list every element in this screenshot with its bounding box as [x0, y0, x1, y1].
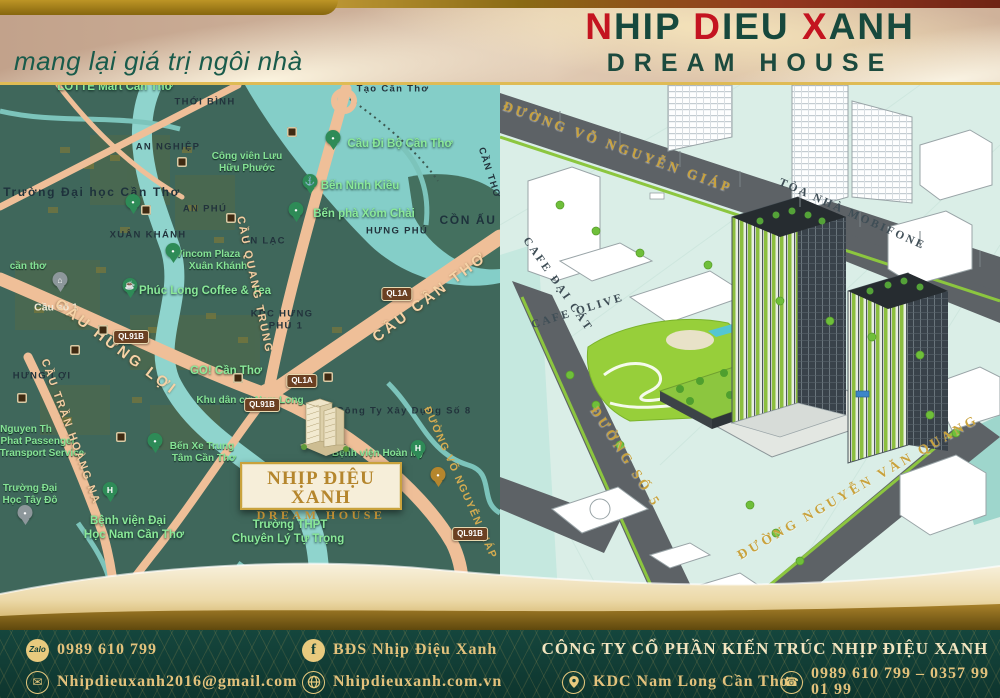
map-label: Chuyên Lý Tự Trọng [232, 533, 344, 547]
transit-station-icon [287, 127, 297, 137]
map-label: Công Ty Xây Dựng Số 8 [337, 405, 472, 416]
map-label: Xuân Khánh [189, 261, 247, 273]
company-name: CÔNG TY CỔ PHẦN KIẾN TRÚC NHỊP ĐIỆU XANH [540, 640, 990, 657]
map-label: PHÚ 1 [269, 320, 303, 331]
brand-title: NHIP DIEU XANH [500, 7, 1000, 48]
footer-email-row: ✉ Nhipdieuxanh2016@gmail.com [26, 670, 297, 694]
map-poi-pin-icon: • [326, 130, 341, 145]
map-poi-pin-icon: ⚓ [303, 174, 318, 189]
transit-station-icon [98, 325, 108, 335]
map-label: Tâm Cần Thơ [172, 453, 236, 465]
road-badge: QL1A [381, 287, 412, 301]
footer-website-row: Nhipdieuxanh.com.vn [302, 670, 502, 694]
footer-facebook-row: f BĐS Nhịp Điệu Xanh [302, 638, 497, 662]
transit-station-icon [323, 372, 333, 382]
brand-title-segment: N [585, 6, 614, 47]
map-label: CỒN ẤU [440, 213, 497, 227]
email-icon: ✉ [26, 671, 49, 694]
map-label: Bến phà Xóm Chài [313, 208, 415, 222]
brand-subtitle: DREAM HOUSE [500, 51, 1000, 76]
map-label: Bệnh viện Đại [90, 515, 166, 529]
email-address: Nhipdieuxanh2016@gmail.com [57, 674, 297, 690]
map-poi-pin-icon: • [148, 433, 163, 448]
road-badge: QL1A [286, 374, 317, 388]
map-poi-pin-icon: • [289, 202, 304, 217]
road-badge: QL91B [452, 527, 488, 541]
address-text: KDC Nam Long Cần Thơ [593, 674, 790, 690]
project-name: NHỊP ĐIỆU XANH [242, 469, 400, 507]
map-label: Bến Xe Trung [170, 441, 234, 453]
map-label: LOTTE Mart Cần Thơ [57, 85, 173, 95]
tagline: mang lại giá trị ngôi nhà [14, 48, 303, 74]
road-badge: QL91B [113, 330, 149, 344]
map-label: PHÚ THỨ [400, 579, 452, 590]
header-gold-cap [0, 0, 338, 15]
poster: mang lại giá trị ngôi nhà NHIP DIEU XANH… [0, 0, 1000, 698]
map-label: Trường Đại học Cần Thơ [3, 185, 181, 199]
map-label: cần thơ [10, 261, 47, 273]
brand-title-segment: IEU [722, 6, 802, 47]
transit-station-icon [116, 432, 126, 442]
map-label: Bến Ninh Kiều [321, 180, 400, 194]
map-label: XUÂN KHÁNH [110, 229, 187, 240]
map-poi-pin-icon: • [18, 505, 33, 520]
map-label: Tạo Cần Thơ [357, 85, 430, 95]
map-label: Trường Đại [3, 483, 57, 495]
transit-station-icon [233, 373, 243, 383]
map-label: HƯNG PHÚ [366, 225, 428, 236]
brand-title-segment: ANH [829, 6, 915, 47]
transit-station-icon [226, 213, 236, 223]
facebook-icon: f [302, 639, 325, 662]
footer-address-row: KDC Nam Long Cần Thơ [562, 670, 790, 694]
zalo-icon: Zalo [26, 639, 49, 662]
website-url: Nhipdieuxanh.com.vn [333, 674, 502, 690]
map-poi-pin-icon: H [103, 482, 118, 497]
map-label: Hữu Phước [219, 163, 275, 175]
map-poi-pin-icon: • [431, 467, 446, 482]
transit-station-icon [141, 205, 151, 215]
map-label: AN PHÚ [183, 203, 227, 214]
transit-station-icon [177, 157, 187, 167]
map-label: AN NGHIỆP [136, 141, 200, 152]
map-label: Cầu Đi Bộ Cần Thơ [347, 138, 452, 152]
phone-icon: ☎ [780, 671, 803, 694]
zalo-number: 0989 610 799 [57, 642, 157, 658]
globe-icon [302, 671, 325, 694]
brand-title-segment: X [802, 6, 829, 47]
map-poi-pin-icon: • [166, 243, 181, 258]
facebook-page: BĐS Nhịp Điệu Xanh [333, 642, 497, 658]
map-label: GO! Cần Thơ [190, 365, 262, 379]
brand-title-segment: D [693, 6, 722, 47]
transit-station-icon [17, 393, 27, 403]
location-pin-icon [562, 671, 585, 694]
footer-zalo-row: Zalo 0989 610 799 [26, 638, 157, 662]
map-label: Học Tây Đô [2, 495, 57, 507]
header: mang lại giá trị ngôi nhà NHIP DIEU XANH… [0, 0, 1000, 85]
brand-title-segment: HIP [614, 6, 693, 47]
location-map: LOTTE Mart Cần ThơTHỚI BÌNHTạo Cần ThơAN… [0, 85, 500, 630]
masterplan-render: ĐƯỜNG VÕ NGUYỄN GIÁPTÒA NHÀ MOBIFONECAFE… [500, 85, 1000, 630]
map-poi-pin-icon: • [126, 194, 141, 209]
map-label: Học Nam Cần Thơ [84, 529, 184, 543]
map-poi-pin-icon: ⌂ [53, 272, 68, 287]
map-poi-pin-icon: H [411, 440, 426, 455]
map-label: THỚI BÌNH [175, 96, 236, 107]
brand-block: NHIP DIEU XANH DREAM HOUSE [500, 7, 1000, 76]
map-poi-pin-icon: ☕ [123, 278, 138, 293]
hotline-numbers: 0989 610 799 – 0357 99 01 99 [811, 666, 1000, 698]
footer: Zalo 0989 610 799 ✉ Nhipdieuxanh2016@gma… [0, 630, 1000, 698]
map-label: Phat Passenger [0, 436, 75, 448]
transit-station-icon [70, 345, 80, 355]
footer-phone-row: ☎ 0989 610 799 – 0357 99 01 99 [780, 670, 1000, 694]
map-label: Vincom Plaza [176, 249, 240, 261]
map-label: Công viên Lưu [212, 151, 283, 163]
project-building-icon [296, 389, 354, 459]
map-label: Nguyen Th [0, 424, 52, 436]
project-label-box: NHỊP ĐIỆU XANH DREAM HOUSE [240, 462, 402, 510]
project-subname: DREAM HOUSE [242, 509, 400, 521]
road-badge: QL91B [244, 398, 280, 412]
